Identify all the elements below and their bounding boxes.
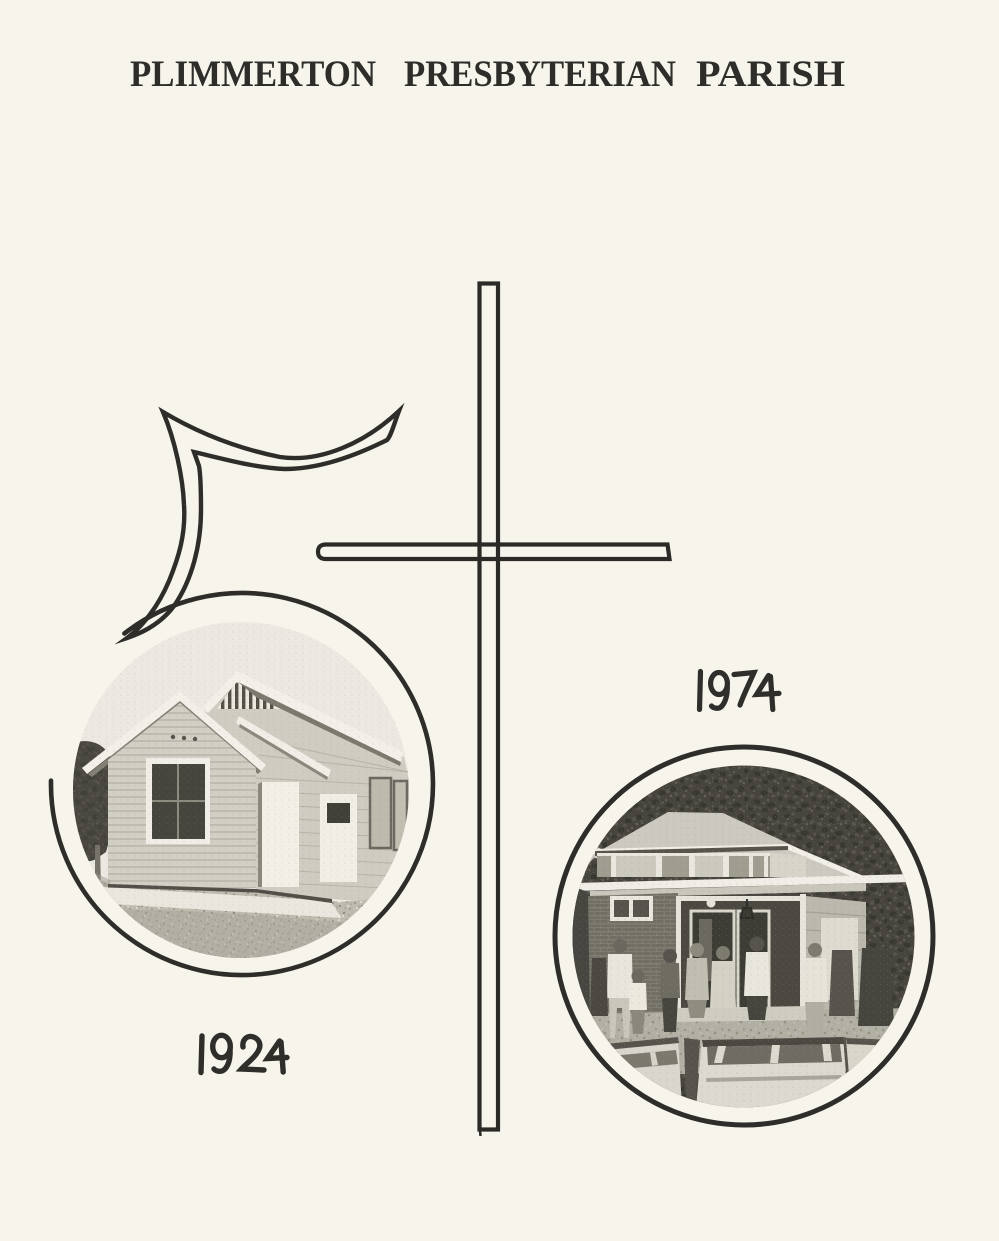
- svg-text:PARISH: PARISH: [696, 54, 845, 95]
- svg-text:PRESBYTERIAN: PRESBYTERIAN: [404, 54, 676, 95]
- svg-text:PLIMMERTON: PLIMMERTON: [130, 54, 376, 95]
